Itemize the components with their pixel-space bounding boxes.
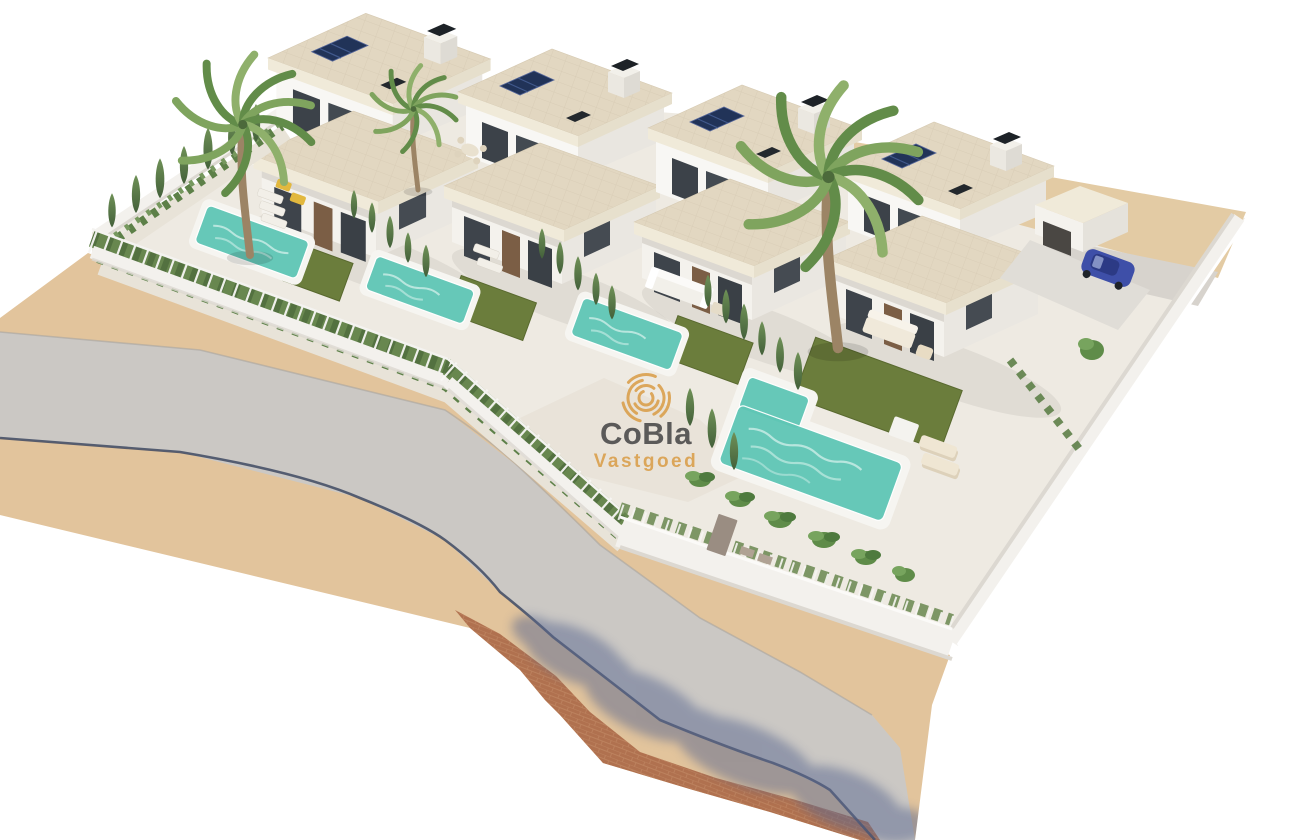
render-canvas: CoBla Vastgoed (0, 0, 1290, 840)
villa-development-render (0, 0, 1290, 840)
